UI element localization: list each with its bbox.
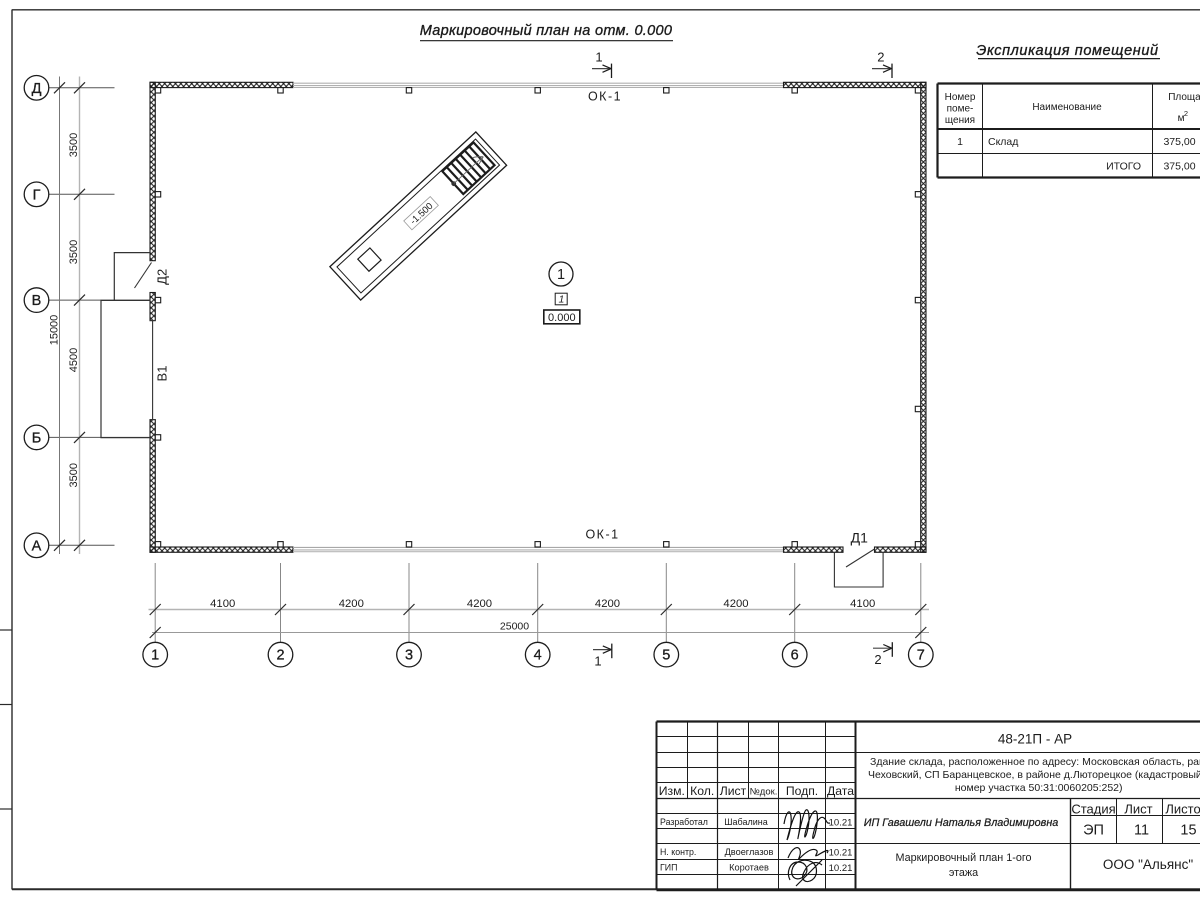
svg-text:Д1: Д1 — [851, 530, 868, 546]
svg-text:ГИП: ГИП — [660, 863, 677, 873]
svg-text:Экспликация помещений: Экспликация помещений — [976, 43, 1158, 59]
svg-text:Б: Б — [32, 430, 42, 446]
svg-text:2: 2 — [874, 652, 881, 667]
svg-text:7: 7 — [917, 648, 925, 664]
svg-text:Листов: Листов — [1165, 802, 1200, 817]
svg-text:48-21П - АР: 48-21П - АР — [998, 732, 1072, 747]
svg-text:375,00: 375,00 — [1163, 161, 1195, 173]
svg-text:Площадь: Площадь — [1168, 92, 1200, 103]
svg-text:3500: 3500 — [68, 240, 80, 264]
svg-text:2: 2 — [877, 50, 884, 65]
svg-text:6: 6 — [791, 648, 799, 664]
svg-text:ИТОГО: ИТОГО — [1106, 161, 1141, 173]
svg-text:4500: 4500 — [68, 348, 80, 372]
svg-text:Разработал: Разработал — [660, 817, 708, 827]
svg-text:В: В — [32, 293, 42, 309]
svg-text:Д2: Д2 — [154, 269, 169, 285]
svg-text:Склад: Склад — [988, 136, 1018, 148]
svg-text:1: 1 — [557, 267, 565, 283]
svg-text:375,00: 375,00 — [1163, 136, 1195, 148]
svg-text:номер участка 50:31:0060205:25: номер участка 50:31:0060205:252) — [955, 782, 1123, 794]
svg-text:Чеховский, СП Баранцевское, в: Чеховский, СП Баранцевское, в районе д.Л… — [868, 769, 1200, 781]
svg-text:5: 5 — [662, 648, 670, 664]
svg-text:щения: щения — [945, 115, 975, 126]
svg-text:Кол.: Кол. — [690, 784, 714, 798]
svg-text:Коротаев: Коротаев — [729, 863, 769, 873]
svg-text:1: 1 — [957, 136, 963, 148]
svg-text:3500: 3500 — [68, 463, 80, 487]
svg-text:15: 15 — [1180, 823, 1196, 839]
svg-text:Стадия: Стадия — [1071, 802, 1115, 817]
svg-text:Н. контр.: Н. контр. — [660, 847, 696, 857]
svg-text:0.000: 0.000 — [548, 312, 576, 324]
svg-text:ЭП: ЭП — [1083, 823, 1104, 839]
svg-text:№док.: №док. — [750, 787, 778, 798]
svg-text:ОК-1: ОК-1 — [585, 528, 619, 542]
svg-text:Изм.: Изм. — [659, 784, 685, 798]
svg-text:10.21: 10.21 — [829, 847, 853, 858]
svg-text:Двоеглазов: Двоеглазов — [725, 847, 774, 857]
svg-text:поме-: поме- — [947, 104, 974, 115]
svg-text:4200: 4200 — [467, 598, 492, 610]
svg-text:25000: 25000 — [500, 620, 529, 632]
svg-text:Маркировочный план на отм. 0.0: Маркировочный план на отм. 0.000 — [420, 23, 672, 39]
svg-text:3: 3 — [405, 648, 413, 664]
svg-text:10.21: 10.21 — [829, 817, 853, 828]
svg-text:15000: 15000 — [48, 315, 60, 346]
svg-text:Шабалина: Шабалина — [724, 817, 767, 827]
svg-text:1: 1 — [595, 50, 602, 65]
svg-text:Здание склада, расположенное п: Здание склада, расположенное по адресу: … — [870, 756, 1200, 768]
svg-text:А: А — [32, 538, 42, 554]
svg-text:Подп.: Подп. — [786, 784, 818, 798]
svg-text:1: 1 — [151, 648, 159, 664]
svg-text:4200: 4200 — [723, 598, 748, 610]
svg-text:Наименование: Наименование — [1032, 102, 1102, 113]
svg-text:4100: 4100 — [850, 598, 875, 610]
svg-text:4100: 4100 — [210, 598, 235, 610]
svg-text:3500: 3500 — [68, 133, 80, 157]
svg-text:1: 1 — [594, 654, 601, 669]
svg-text:Лист: Лист — [1124, 802, 1152, 817]
svg-text:11: 11 — [1134, 823, 1149, 839]
svg-text:ОК-1: ОК-1 — [588, 90, 622, 104]
svg-text:ИП Гавашели Наталья Владимиров: ИП Гавашели Наталья Владимировна — [864, 817, 1059, 829]
svg-text:Дата: Дата — [827, 784, 854, 798]
svg-text:Номер: Номер — [945, 92, 976, 103]
svg-text:2: 2 — [276, 648, 284, 664]
svg-text:Маркировочный план 1-ого: Маркировочный план 1-ого — [895, 852, 1031, 864]
svg-text:Г: Г — [33, 187, 41, 203]
svg-text:4: 4 — [534, 648, 542, 664]
svg-text:В1: В1 — [154, 366, 169, 382]
svg-text:Лист: Лист — [720, 784, 747, 798]
svg-text:ООО "Альянс": ООО "Альянс" — [1103, 857, 1193, 872]
svg-text:4200: 4200 — [339, 598, 364, 610]
svg-text:Д: Д — [32, 81, 42, 97]
svg-text:этажа: этажа — [949, 867, 978, 879]
svg-text:2: 2 — [1184, 109, 1188, 118]
svg-text:4200: 4200 — [595, 598, 620, 610]
svg-text:1: 1 — [558, 293, 564, 305]
svg-text:10.21: 10.21 — [829, 863, 853, 874]
